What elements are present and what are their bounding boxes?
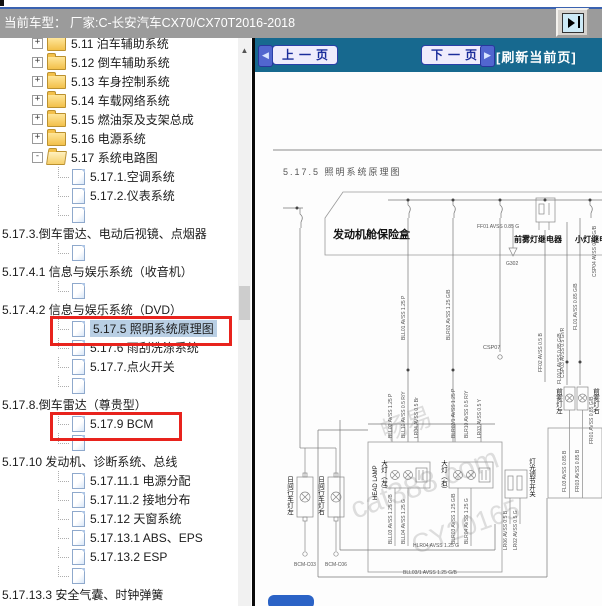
wiring-diagram: 畅易 cat388.com CY20165 5.17.5 照明系统原理图 发动机…: [255, 72, 602, 606]
app-window: 当前车型： 厂家:C-长安汽车CX70/CX70T2016-2018 + 5.1…: [0, 0, 602, 606]
tree-connector: [58, 376, 69, 387]
bottom-blue-button[interactable]: [268, 595, 314, 606]
tree-item-blank[interactable]: [0, 376, 238, 395]
expand-plus-icon[interactable]: +: [32, 133, 43, 144]
wire-label-blr02: BLR02 AVSS 1.25 G/B: [446, 289, 452, 340]
folder-icon: [47, 75, 66, 89]
tree-item-5-17-7[interactable]: 5.17.7.点火开关: [0, 357, 238, 376]
tree-item-5-15[interactable]: + 5.15 燃油泵及支架总成: [0, 110, 238, 129]
diagram-title: 5.17.5 照明系统原理图: [283, 166, 402, 177]
tree-connector: [58, 509, 69, 520]
tree-item-5-17-2[interactable]: 5.17.2.仪表系统: [0, 186, 238, 205]
tree-item-5-17-8[interactable]: 5.17.8.倒车雷达（尊贵型）: [0, 395, 238, 414]
wire-label-fl01: FL01 AVSS 0.85 G/B: [573, 283, 579, 330]
prev-arrow-icon[interactable]: ◀: [258, 45, 273, 67]
tree-item-5-17-3[interactable]: 5.17.3.倒车雷达、电动后视镜、点烟器: [0, 224, 238, 243]
wire-label-lr03: LR03 AVSS 0.5 Y: [477, 398, 483, 438]
viewer-toolbar: ◀ 上一页 下一页 ▶ [刷新当前页]: [255, 38, 602, 72]
fog-relay-label: 前雾灯继电器: [514, 234, 563, 244]
tree-connector: [58, 186, 69, 197]
tree-scrollbar[interactable]: ▲: [238, 38, 251, 606]
document-icon: [72, 169, 85, 185]
document-icon: [72, 530, 85, 546]
tree-item-5-11[interactable]: + 5.11 泊车辅助系统: [0, 38, 238, 53]
document-icon: [72, 473, 85, 489]
fusebox-label: 发动机舱保险盒: [332, 227, 411, 241]
tree-connector: [58, 433, 69, 444]
wire-label-hlr04: HLR04 AVSS 1.25 G: [413, 543, 459, 549]
tree-connector: [58, 528, 69, 539]
folder-icon: [47, 38, 66, 51]
expand-plus-icon[interactable]: +: [32, 76, 43, 87]
tree-connector: [58, 205, 69, 216]
folder-icon: [47, 56, 66, 70]
corner-mark: [0, 0, 4, 6]
tree-connector: [58, 357, 69, 368]
tree-item-5-17-13-1[interactable]: 5.17.13.1 ABS、EPS: [0, 528, 238, 547]
document-icon: [72, 340, 85, 356]
expand-plus-icon[interactable]: +: [32, 95, 43, 106]
wire-label-blr10: BLR10 AVSS 0.5 R/Y: [464, 390, 470, 438]
folder-icon: [47, 113, 66, 127]
tree-item-blank[interactable]: [0, 281, 238, 300]
prev-page-button[interactable]: 上一页: [272, 45, 338, 65]
tree-item-5-17-4-1[interactable]: 5.17.4.1 信息与娱乐系统（收音机）: [0, 262, 238, 281]
tree-item-5-16[interactable]: + 5.16 电源系统: [0, 129, 238, 148]
distribution-wires: [368, 218, 580, 442]
expand-plus-icon[interactable]: +: [32, 57, 43, 68]
tree-item-5-17-4-2[interactable]: 5.17.4.2 信息与娱乐系统（DVD）: [0, 300, 238, 319]
wire-label-bll031: BLL03/1 AVSS 1.25 G/B: [403, 570, 457, 576]
expand-plus-icon[interactable]: +: [32, 114, 43, 125]
connector-label-csp07: CSP07: [483, 345, 500, 351]
tree-item-5-12[interactable]: + 5.12 倒车辅助系统: [0, 53, 238, 72]
wire-junction-dots: [407, 361, 582, 372]
refresh-current-page-link[interactable]: [刷新当前页]: [496, 47, 577, 66]
document-icon: [72, 568, 85, 584]
document-icon: [72, 378, 85, 394]
wire-label-blr04: BLR04 AVSS 1.25 G: [464, 498, 470, 544]
expand-plus-icon[interactable]: +: [32, 38, 43, 49]
document-icon: [72, 511, 85, 527]
tree-item-5-17-13-2[interactable]: 5.17.13.2 ESP: [0, 547, 238, 566]
document-icon: [72, 416, 85, 432]
document-icon: [72, 283, 85, 299]
tree-item-5-13[interactable]: + 5.13 车身控制系统: [0, 72, 238, 91]
document-icon: [72, 188, 85, 204]
document-icon: [72, 492, 85, 508]
tree-item-5-17-5-selected[interactable]: 5.17.5 照明系统原理图: [0, 319, 238, 338]
tree-connector: [58, 414, 69, 425]
tree-item-blank[interactable]: [0, 566, 238, 585]
tree-item-5-17-10[interactable]: 5.17.10 发动机、诊断系统、总线: [0, 452, 238, 471]
wire-label-fr01: FR01 AVSS 0.85 G/B: [589, 396, 595, 444]
tree-connector: [58, 167, 69, 178]
bcm-c03-label: BCM-C03: [294, 562, 316, 568]
tree-item-5-17-13-3[interactable]: 5.17.13.3 安全气囊、时钟弹簧: [0, 585, 238, 604]
next-page-button[interactable]: 下一页: [421, 45, 487, 65]
document-icon: [72, 359, 85, 375]
diagram-viewer: ◀ 上一页 下一页 ▶ [刷新当前页] 畅易 cat388.com CY2016…: [252, 38, 602, 606]
expand-minus-icon[interactable]: -: [32, 152, 43, 163]
wire-label-ff02: FF02 AVSS 0.5 B: [538, 333, 544, 372]
engine-fusebox-outline: [325, 192, 602, 255]
wire-label-bll04: BLL04 AVSS 1.25 G: [401, 499, 407, 544]
document-icon: [72, 321, 85, 337]
wire-label-fl011: FL01/1 AVSS 0.85 G/B: [557, 333, 563, 384]
top-strip: [0, 0, 602, 7]
document-icon: [72, 549, 85, 565]
tree-connector: [58, 566, 69, 577]
document-icon: [72, 245, 85, 261]
tree-item-blank[interactable]: [0, 205, 238, 224]
light-switch-label: 灯光调节开关: [528, 457, 536, 499]
tree-item-blank[interactable]: [0, 243, 238, 262]
next-arrow-icon[interactable]: ▶: [480, 45, 495, 67]
ground-label: G302: [506, 261, 518, 267]
tree-item-5-17-6[interactable]: 5.17.6 雨刮洗涤系统: [0, 338, 238, 357]
wire-label-bll01: BLL01 AVSS 1.25 P: [401, 295, 407, 340]
tree-item-5-17[interactable]: - 5.17 系统电路图: [0, 148, 238, 167]
tree-connector: [58, 338, 69, 349]
panel-toggle-button[interactable]: [556, 8, 589, 37]
open-folder-icon: [46, 151, 67, 165]
fog-left-label: 前雾灯左: [555, 387, 563, 415]
manual-tree: + 5.11 泊车辅助系统 + 5.12 倒车辅助系统 + 5.13 车身控制系…: [0, 38, 238, 606]
current-vehicle-label: 当前车型： 厂家:C-长安汽车CX70/CX70T2016-2018: [4, 16, 295, 30]
tree-item-5-14[interactable]: + 5.14 车载网络系统: [0, 91, 238, 110]
document-icon: [72, 207, 85, 223]
tree-item-blank[interactable]: [0, 433, 238, 452]
tree-connector: [58, 547, 69, 558]
scrollbar-thumb[interactable]: [239, 286, 250, 320]
tree-item-5-17-12[interactable]: 5.17.12 天窗系统: [0, 509, 238, 528]
wire-label-fr03: FR03 AVSS 0.85 B: [575, 449, 581, 492]
folder-icon: [47, 132, 66, 146]
tree-item-5-17-9-bcm[interactable]: 5.17.9 BCM: [0, 414, 238, 433]
tree-connector: [58, 319, 69, 330]
wire-label-lr06: LR06 AVSS 0.5 B: [503, 510, 509, 550]
wire-label-lr02: LR02 AVSS 0.5 G: [513, 510, 519, 550]
wire-label-bll02: BLL02 AVSS 1.25 P: [388, 393, 394, 438]
current-vehicle-bar: 当前车型： 厂家:C-长安汽车CX70/CX70T2016-2018: [0, 9, 602, 38]
tree-connector: [58, 490, 69, 501]
tree-item-5-17-1[interactable]: 5.17.1.空调系统: [0, 167, 238, 186]
wire-label-csp04: CSP04 AVSS 0.85 G/B: [592, 225, 598, 277]
tree-item-5-17-11-2[interactable]: 5.17.11.2 接地分布: [0, 490, 238, 509]
fog-relay-symbol: [536, 198, 555, 230]
wire-label-lr04: LR04 AVSS 0.5 Br: [414, 397, 420, 438]
scroll-up-icon[interactable]: ▲: [238, 44, 251, 58]
tree-connector: [58, 471, 69, 482]
bcm-c06-label: BCM-C06: [325, 562, 347, 568]
tree-item-5-17-11-1[interactable]: 5.17.11.1 电源分配: [0, 471, 238, 490]
tree-connector: [58, 281, 69, 292]
tree-connector: [58, 243, 69, 254]
connector-circle: [498, 355, 502, 359]
wire-label-blr03: BLR03 AVSS 1.25 G/B: [451, 493, 457, 544]
headlamp-en-label: HEAD LAMP: [373, 465, 379, 500]
folder-icon: [47, 94, 66, 108]
wire-label-bll03: BLL03 AVSS 1.25 G/B: [388, 494, 394, 544]
wire-label-fl03: FL03 AVSS 0.85 B: [562, 450, 568, 492]
wire-label-blr021: BLR02/1 AVSS 1.25 P: [451, 388, 457, 438]
drl-left-label: 日间行车灯左: [286, 476, 294, 516]
document-icon: [72, 435, 85, 451]
wire-label-bll10: BLL10 AVSS 0.5 R/Y: [401, 391, 407, 438]
panel-toggle-icon: [562, 13, 584, 33]
